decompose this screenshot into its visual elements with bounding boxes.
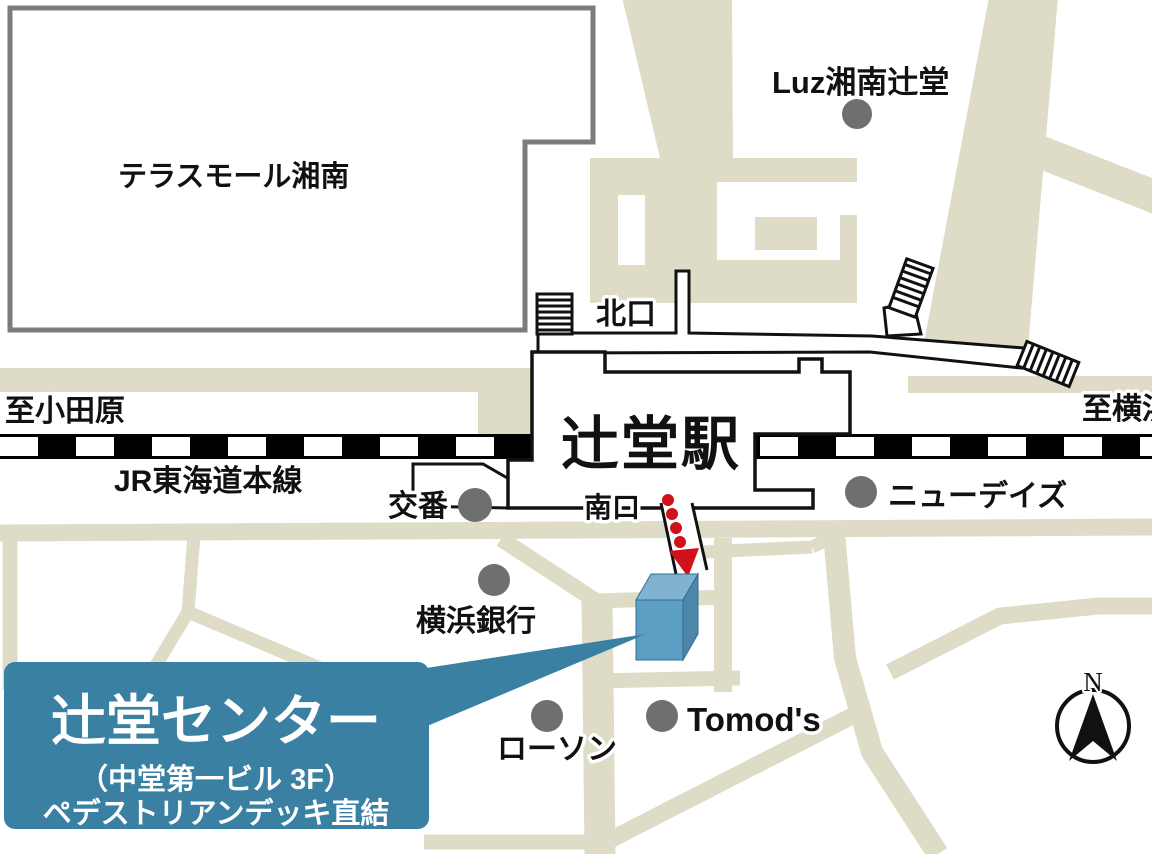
road-lawson-vertical [597, 598, 600, 854]
north-exit-label: 北口 [596, 298, 656, 331]
plaza-block-3 [840, 182, 873, 215]
road-station-front [704, 547, 812, 552]
tomods-label: Tomod's [687, 701, 821, 738]
road-east-band [908, 376, 1152, 393]
compass-north-label: N [1083, 667, 1103, 697]
road-south-main [0, 527, 1152, 533]
lawson-label: ローソン [497, 733, 617, 766]
koban-dot [458, 488, 492, 522]
south-exit-label: 南口 [584, 492, 640, 523]
terrace-mall-label: テラスモール湘南 [118, 160, 349, 193]
to-odawara-label: 至小田原 [5, 395, 125, 428]
yokohama-bank-dot [478, 564, 510, 596]
road-connector [592, 678, 740, 681]
destination-building [636, 574, 698, 660]
luz-dot [842, 99, 872, 129]
callout-subtitle: （中堂第一ビル 3F） [79, 762, 353, 796]
station-name-label: 辻堂駅 [561, 412, 741, 477]
route-dot [662, 494, 674, 506]
building-front-face [636, 600, 683, 660]
koban-label: 交番 [388, 489, 449, 523]
map-canvas: テラスモール湘南 Luz湘南辻堂 北口 至小田原 至横浜 辻堂駅 JR東海道本線… [0, 0, 1152, 854]
route-dot [670, 522, 682, 534]
stairs-north-icon [537, 294, 572, 334]
luz-label: Luz湘南辻堂 [772, 65, 949, 100]
callout-title: 辻堂センター [51, 690, 381, 752]
newdays-dot [845, 476, 877, 508]
route-dot [666, 508, 678, 520]
route-dot [674, 536, 686, 548]
plaza-inner-road [755, 217, 817, 250]
road-west-block [478, 368, 531, 434]
road-west-strip [0, 368, 531, 392]
lawson-dot [531, 700, 563, 732]
callout-note: ペデストリアンデッキ直結 [43, 796, 390, 830]
jr-line-label: JR東海道本線 [114, 464, 302, 498]
newdays-label: ニューデイズ [888, 479, 1067, 513]
access-map: テラスモール湘南 Luz湘南辻堂 北口 至小田原 至横浜 辻堂駅 JR東海道本線… [0, 0, 1152, 854]
yokohama-bank-label: 横浜銀行 [416, 605, 536, 638]
tomods-dot [646, 700, 678, 732]
plaza-block-1 [618, 195, 645, 265]
to-yokohama-label: 至横浜 [1082, 393, 1152, 426]
